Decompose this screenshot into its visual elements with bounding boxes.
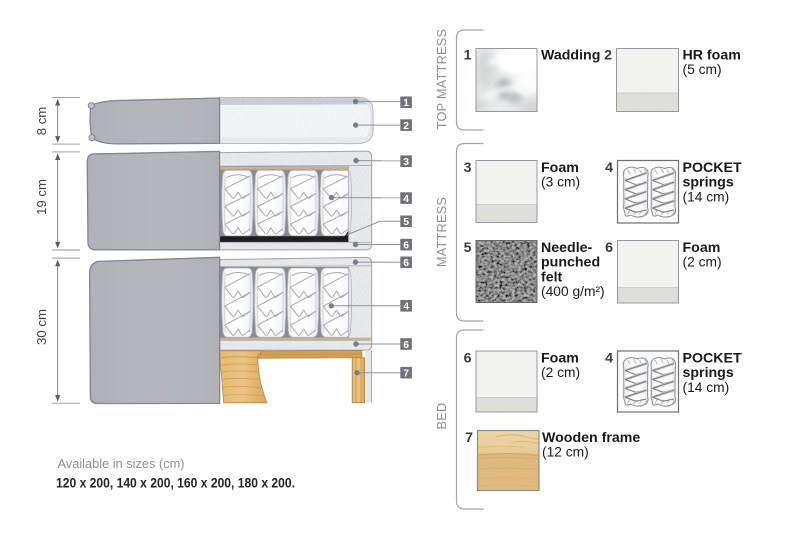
svg-text:3: 3 [403, 157, 409, 168]
svg-text:7: 7 [403, 369, 409, 380]
svg-text:HR foam: HR foam [683, 47, 741, 63]
svg-text:POCKET: POCKET [683, 160, 742, 176]
svg-text:Wooden frame: Wooden frame [542, 430, 640, 446]
svg-text:Wadding: Wadding [541, 47, 600, 63]
svg-text:1: 1 [464, 47, 472, 63]
svg-text:3: 3 [464, 160, 472, 176]
svg-text:Needle-: Needle- [541, 240, 593, 256]
svg-text:5: 5 [464, 240, 472, 256]
svg-text:(14 cm): (14 cm) [683, 189, 730, 204]
svg-text:Foam: Foam [541, 160, 579, 176]
svg-text:Foam: Foam [541, 350, 579, 366]
svg-text:1: 1 [403, 98, 409, 109]
svg-text:(2 cm): (2 cm) [683, 255, 722, 270]
svg-text:MATTRESS: MATTRESS [434, 197, 449, 267]
svg-text:springs: springs [683, 175, 734, 191]
svg-text:punched: punched [541, 255, 600, 271]
svg-text:120 x 200, 140 x 200, 160 x 20: 120 x 200, 140 x 200, 160 x 200, 180 x 2… [56, 476, 295, 492]
svg-text:(5 cm): (5 cm) [683, 62, 722, 77]
svg-text:TOP MATTRESS: TOP MATTRESS [434, 29, 449, 130]
svg-text:4: 4 [403, 194, 409, 205]
svg-text:(14 cm): (14 cm) [683, 380, 730, 395]
svg-text:19 cm: 19 cm [34, 179, 49, 215]
svg-text:(400 g/m²): (400 g/m²) [541, 284, 605, 299]
svg-text:30 cm: 30 cm [34, 309, 49, 345]
svg-text:6: 6 [403, 340, 409, 351]
svg-text:6: 6 [464, 350, 472, 366]
svg-text:POCKET: POCKET [683, 350, 742, 366]
svg-text:BED: BED [434, 403, 449, 430]
svg-text:6: 6 [403, 258, 409, 269]
svg-text:4: 4 [605, 160, 613, 176]
svg-text:4: 4 [605, 350, 613, 366]
svg-text:Foam: Foam [683, 240, 721, 256]
svg-text:2: 2 [403, 121, 409, 132]
svg-text:4: 4 [403, 302, 409, 313]
svg-text:(2 cm): (2 cm) [541, 365, 580, 380]
svg-text:7: 7 [465, 430, 473, 446]
svg-text:felt: felt [541, 269, 563, 285]
svg-text:6: 6 [403, 240, 409, 251]
svg-text:5: 5 [403, 217, 409, 228]
svg-text:8 cm: 8 cm [34, 107, 49, 136]
svg-text:springs: springs [683, 365, 734, 381]
svg-text:2: 2 [604, 47, 612, 63]
svg-text:6: 6 [605, 240, 613, 256]
svg-text:Available in sizes (cm): Available in sizes (cm) [58, 456, 185, 471]
svg-text:(3 cm): (3 cm) [541, 175, 580, 190]
svg-text:(12 cm): (12 cm) [542, 445, 589, 460]
